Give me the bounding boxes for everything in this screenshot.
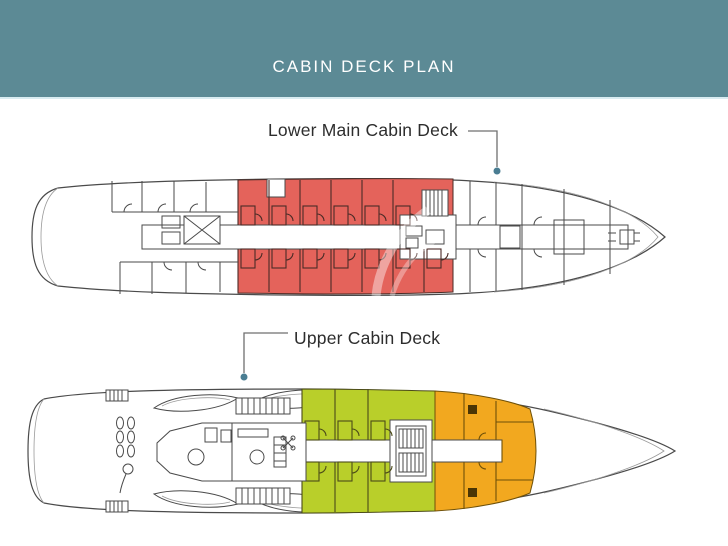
header-edge-line — [0, 97, 728, 99]
lower-deck-leader-line — [468, 131, 497, 167]
sun-loungers — [117, 417, 135, 457]
upper-aft-deck — [106, 390, 135, 512]
lower-deck-plan — [24, 170, 704, 300]
page: CABIN DECK PLAN Lower Main Cabin Deck Up… — [0, 0, 728, 546]
upper-deck-leader-line — [244, 333, 288, 373]
crane-davit — [120, 464, 133, 493]
header-bar — [0, 0, 728, 97]
page-title: CABIN DECK PLAN — [0, 57, 728, 77]
upper-deck-label: Upper Cabin Deck — [294, 328, 440, 349]
deckhouse — [157, 398, 306, 504]
upper-deck-plan — [24, 381, 714, 521]
lower-deck-label: Lower Main Cabin Deck — [268, 120, 458, 141]
upper-deck-leader-dot — [241, 374, 248, 381]
